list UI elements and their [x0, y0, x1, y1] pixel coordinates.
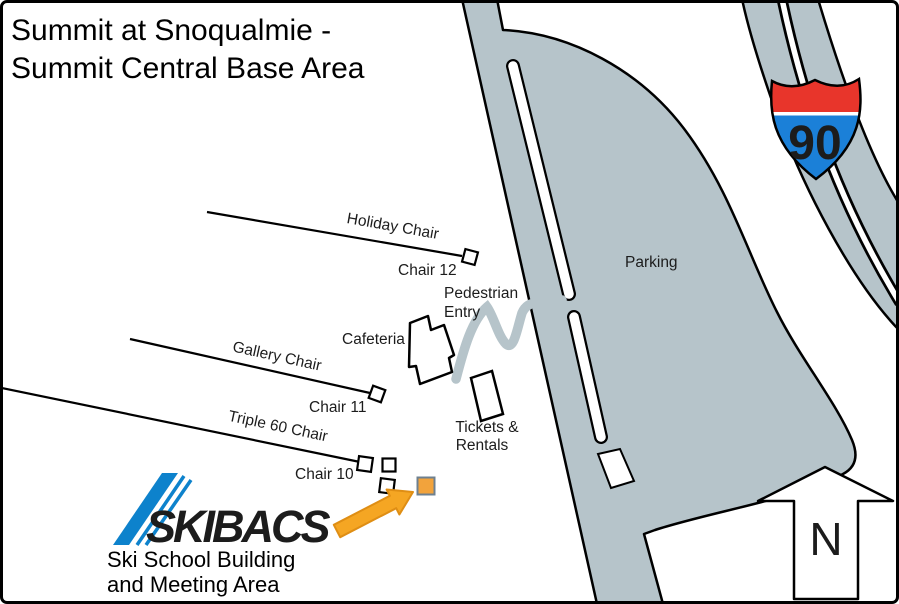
chair-12-station-marker [462, 249, 478, 265]
cafeteria-building [409, 316, 454, 384]
ski-school-building-marker [418, 478, 435, 495]
chair-10-station-marker [357, 456, 373, 472]
map-title-line2: Summit Central Base Area [11, 52, 365, 85]
ski-school-caption-line1: Ski School Building [107, 547, 295, 572]
gallery-chair-label: Gallery Chair [231, 339, 323, 375]
ski-school-pointer-arrow-icon [334, 490, 413, 538]
base-building-marker [383, 459, 396, 472]
tickets-rentals-label-line2: Rentals [456, 437, 509, 454]
skibacs-wordmark: SKIBACS [146, 501, 331, 552]
pedestrian-entry-label-line2: Entry [444, 304, 480, 321]
chair-12-label: Chair 12 [398, 262, 457, 279]
map-canvas: Parking 90 Holiday Chair Chair 12 Galler… [3, 3, 896, 601]
chair-11-label: Chair 11 [309, 399, 366, 416]
north-label: N [809, 513, 842, 565]
pedestrian-entry-label-line1: Pedestrian [444, 285, 518, 302]
tickets-rentals-building [471, 371, 503, 421]
skibacs-logo: SKIBACS [113, 473, 331, 552]
ski-school-caption-line2: and Meeting Area [107, 572, 280, 597]
map-title-line1: Summit at Snoqualmie - [11, 14, 331, 47]
trail-map: Parking 90 Holiday Chair Chair 12 Galler… [0, 0, 899, 604]
tickets-rentals-label-line1: Tickets & [455, 419, 519, 436]
chair-11-station-marker [369, 386, 386, 403]
i90-shield-number: 90 [788, 117, 841, 170]
parking-label: Parking [625, 254, 678, 271]
chair-10-label: Chair 10 [295, 466, 354, 483]
cafeteria-label: Cafeteria [342, 331, 405, 348]
